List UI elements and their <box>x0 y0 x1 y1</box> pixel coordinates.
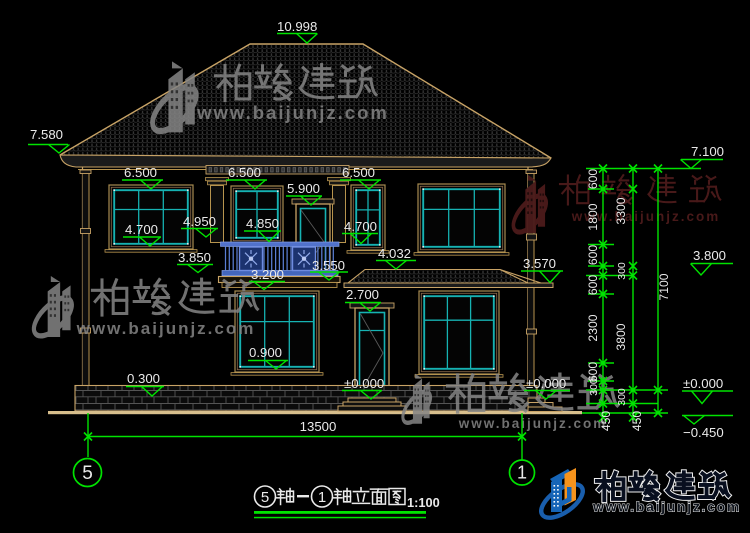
svg-text:1:100: 1:100 <box>407 495 440 510</box>
svg-text:3.550: 3.550 <box>312 258 345 273</box>
svg-text:5.900: 5.900 <box>287 181 320 196</box>
svg-text:3.570: 3.570 <box>523 256 556 271</box>
svg-text:www.baijunjz.com: www.baijunjz.com <box>76 319 256 338</box>
svg-text:3.800: 3.800 <box>693 248 726 263</box>
svg-text:300: 300 <box>616 388 628 406</box>
svg-text:1: 1 <box>318 489 326 506</box>
svg-text:www.baijunjz.com: www.baijunjz.com <box>592 499 741 515</box>
svg-text:5: 5 <box>261 489 269 506</box>
svg-text:4.700: 4.700 <box>125 222 158 237</box>
svg-text:2.700: 2.700 <box>346 287 379 302</box>
svg-text:4.700: 4.700 <box>344 219 377 234</box>
svg-text:450: 450 <box>599 411 613 432</box>
svg-text:www.baijunjz.com: www.baijunjz.com <box>458 416 608 431</box>
svg-text:7.100: 7.100 <box>691 144 724 159</box>
svg-text:13500: 13500 <box>300 419 337 434</box>
svg-text:3300: 3300 <box>614 197 628 224</box>
svg-text:7100: 7100 <box>657 273 671 300</box>
svg-text:600: 600 <box>586 245 600 266</box>
svg-text:3.200: 3.200 <box>251 267 284 282</box>
svg-text:300: 300 <box>616 262 628 280</box>
svg-text:±0.000: ±0.000 <box>526 376 566 391</box>
svg-text:www.baijunjz.com: www.baijunjz.com <box>196 102 389 123</box>
svg-text:3.850: 3.850 <box>178 250 211 265</box>
svg-text:±0.000: ±0.000 <box>344 376 384 391</box>
svg-text:600: 600 <box>586 275 600 296</box>
svg-text:3800: 3800 <box>614 323 628 350</box>
svg-text:0.300: 0.300 <box>127 371 160 386</box>
svg-text:5: 5 <box>82 463 93 484</box>
svg-text:7.580: 7.580 <box>30 127 63 142</box>
svg-text:10.998: 10.998 <box>277 19 317 34</box>
svg-text:0.900: 0.900 <box>249 345 282 360</box>
svg-text:±0.000: ±0.000 <box>683 376 723 391</box>
svg-text:6.500: 6.500 <box>228 165 261 180</box>
svg-text:2300: 2300 <box>586 314 600 341</box>
svg-text:1800: 1800 <box>586 203 600 230</box>
svg-text:6.500: 6.500 <box>124 165 157 180</box>
svg-text:4.950: 4.950 <box>183 214 216 229</box>
svg-text:1: 1 <box>517 463 527 483</box>
svg-text:4.032: 4.032 <box>378 246 411 261</box>
svg-text:600: 600 <box>586 169 600 190</box>
svg-text:4.850: 4.850 <box>246 216 279 231</box>
svg-text:−0.450: −0.450 <box>683 425 724 440</box>
svg-text:450: 450 <box>630 411 644 432</box>
svg-text:300: 300 <box>588 378 600 396</box>
svg-text:6.500: 6.500 <box>342 165 375 180</box>
